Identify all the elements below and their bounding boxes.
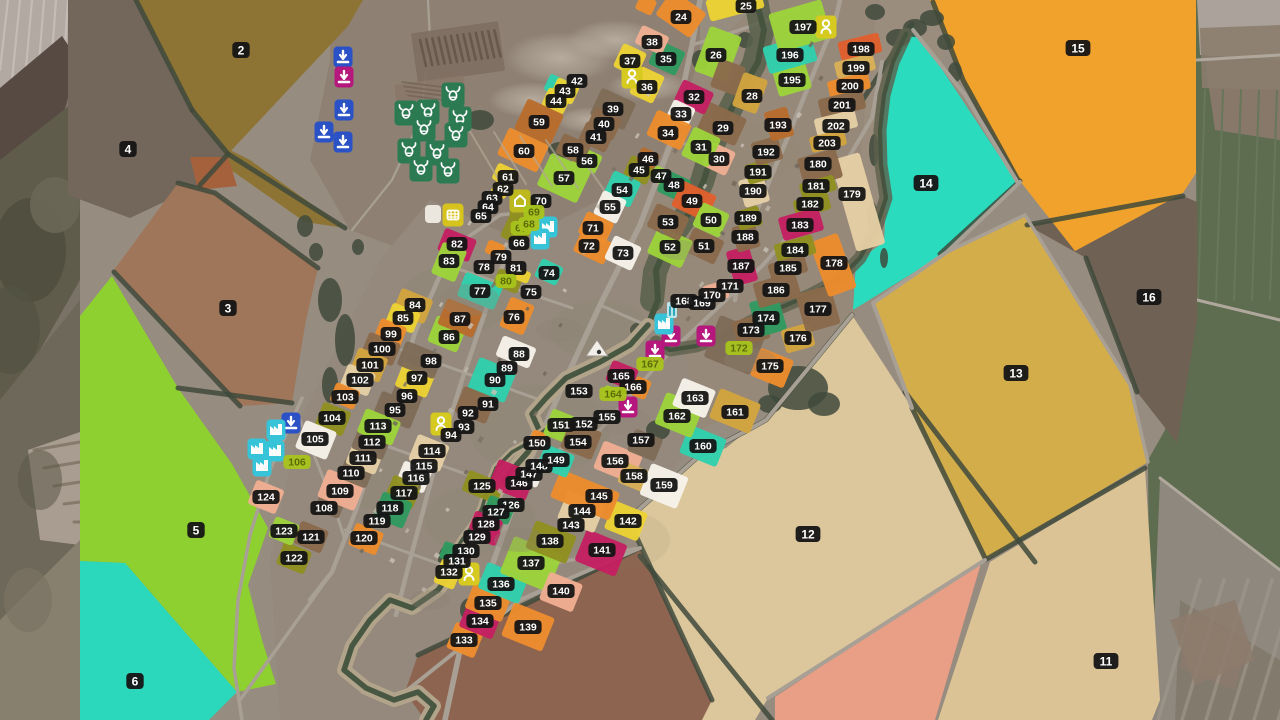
svg-text:177: 177 bbox=[809, 304, 827, 316]
svg-text:140: 140 bbox=[552, 586, 570, 598]
svg-text:35: 35 bbox=[660, 54, 672, 66]
svg-text:129: 129 bbox=[468, 532, 486, 544]
svg-text:98: 98 bbox=[425, 356, 437, 368]
svg-text:138: 138 bbox=[541, 536, 559, 548]
svg-text:44: 44 bbox=[550, 96, 562, 108]
svg-text:163: 163 bbox=[686, 393, 704, 405]
svg-text:164: 164 bbox=[604, 389, 622, 401]
svg-text:198: 198 bbox=[852, 44, 870, 56]
svg-text:45: 45 bbox=[633, 165, 645, 177]
svg-text:142: 142 bbox=[619, 516, 637, 528]
svg-text:176: 176 bbox=[789, 333, 807, 345]
svg-text:96: 96 bbox=[401, 391, 413, 403]
svg-text:151: 151 bbox=[552, 420, 570, 432]
svg-text:69: 69 bbox=[528, 207, 540, 219]
svg-text:5: 5 bbox=[193, 523, 200, 537]
svg-text:99: 99 bbox=[385, 329, 397, 341]
svg-text:173: 173 bbox=[742, 325, 760, 337]
svg-text:37: 37 bbox=[624, 56, 636, 68]
svg-text:115: 115 bbox=[416, 461, 433, 473]
svg-text:48: 48 bbox=[668, 180, 680, 192]
svg-text:155: 155 bbox=[598, 412, 616, 424]
svg-text:190: 190 bbox=[744, 186, 762, 198]
svg-text:161: 161 bbox=[726, 407, 744, 419]
svg-text:183: 183 bbox=[791, 220, 809, 232]
svg-text:92: 92 bbox=[462, 408, 474, 420]
svg-text:159: 159 bbox=[655, 480, 673, 492]
svg-text:34: 34 bbox=[662, 128, 674, 140]
svg-text:14: 14 bbox=[919, 176, 933, 190]
svg-text:105: 105 bbox=[306, 434, 324, 446]
svg-text:111: 111 bbox=[355, 453, 372, 465]
svg-text:31: 31 bbox=[695, 142, 707, 154]
svg-text:150: 150 bbox=[528, 438, 546, 450]
svg-text:166: 166 bbox=[624, 382, 642, 394]
svg-text:160: 160 bbox=[694, 441, 712, 453]
svg-text:185: 185 bbox=[779, 263, 797, 275]
svg-text:89: 89 bbox=[501, 363, 513, 375]
svg-text:60: 60 bbox=[518, 146, 530, 158]
svg-text:41: 41 bbox=[590, 132, 602, 144]
svg-text:79: 79 bbox=[495, 252, 507, 264]
svg-text:33: 33 bbox=[675, 109, 687, 121]
svg-text:53: 53 bbox=[662, 217, 674, 229]
svg-text:109: 109 bbox=[331, 486, 349, 498]
svg-text:125: 125 bbox=[473, 481, 491, 493]
svg-text:174: 174 bbox=[757, 313, 775, 325]
svg-text:50: 50 bbox=[705, 215, 717, 227]
svg-text:78: 78 bbox=[478, 262, 490, 274]
svg-text:128: 128 bbox=[477, 519, 495, 531]
svg-text:40: 40 bbox=[598, 119, 610, 131]
svg-text:82: 82 bbox=[451, 239, 463, 251]
svg-text:149: 149 bbox=[547, 455, 565, 467]
svg-text:6: 6 bbox=[132, 674, 139, 688]
svg-text:30: 30 bbox=[713, 154, 725, 166]
svg-text:182: 182 bbox=[801, 199, 819, 211]
svg-text:112: 112 bbox=[364, 437, 381, 449]
svg-text:39: 39 bbox=[607, 104, 619, 116]
svg-text:201: 201 bbox=[833, 100, 851, 112]
svg-text:141: 141 bbox=[593, 545, 611, 557]
svg-text:76: 76 bbox=[508, 312, 520, 324]
svg-text:13: 13 bbox=[1009, 366, 1023, 380]
svg-text:102: 102 bbox=[351, 375, 369, 387]
svg-text:181: 181 bbox=[807, 181, 825, 193]
svg-text:188: 188 bbox=[736, 232, 754, 244]
svg-text:56: 56 bbox=[581, 156, 593, 168]
svg-text:114: 114 bbox=[424, 446, 441, 458]
svg-text:2: 2 bbox=[238, 43, 245, 57]
svg-text:122: 122 bbox=[285, 553, 303, 565]
svg-text:57: 57 bbox=[558, 173, 570, 185]
svg-text:88: 88 bbox=[513, 349, 525, 361]
svg-text:71: 71 bbox=[587, 223, 599, 235]
svg-text:11: 11 bbox=[1100, 654, 1113, 668]
svg-text:94: 94 bbox=[445, 430, 457, 442]
svg-text:97: 97 bbox=[411, 373, 423, 385]
svg-text:179: 179 bbox=[843, 189, 861, 201]
svg-text:28: 28 bbox=[746, 91, 758, 103]
svg-text:101: 101 bbox=[361, 360, 379, 372]
svg-text:156: 156 bbox=[606, 456, 624, 468]
svg-text:36: 36 bbox=[641, 82, 653, 94]
svg-text:32: 32 bbox=[688, 92, 700, 104]
svg-text:172: 172 bbox=[730, 343, 748, 355]
svg-text:187: 187 bbox=[732, 261, 750, 273]
svg-text:123: 123 bbox=[275, 526, 293, 538]
svg-text:196: 196 bbox=[781, 50, 799, 62]
svg-text:61: 61 bbox=[502, 172, 514, 184]
svg-text:200: 200 bbox=[841, 81, 859, 93]
svg-text:162: 162 bbox=[668, 411, 686, 423]
svg-text:178: 178 bbox=[825, 258, 843, 270]
svg-text:24: 24 bbox=[675, 12, 687, 24]
svg-text:132: 132 bbox=[440, 567, 458, 579]
svg-text:199: 199 bbox=[847, 63, 865, 75]
svg-text:118: 118 bbox=[382, 503, 399, 515]
svg-text:127: 127 bbox=[487, 507, 505, 519]
svg-text:117: 117 bbox=[396, 488, 413, 500]
svg-text:80: 80 bbox=[500, 276, 512, 288]
svg-text:100: 100 bbox=[373, 344, 391, 356]
svg-text:74: 74 bbox=[543, 268, 555, 280]
svg-text:119: 119 bbox=[369, 516, 386, 528]
svg-text:110: 110 bbox=[343, 468, 360, 480]
svg-text:195: 195 bbox=[783, 75, 801, 87]
svg-text:91: 91 bbox=[482, 399, 494, 411]
svg-text:203: 203 bbox=[818, 138, 836, 150]
svg-text:103: 103 bbox=[336, 392, 354, 404]
svg-text:189: 189 bbox=[739, 213, 757, 225]
svg-text:193: 193 bbox=[769, 120, 787, 132]
svg-text:124: 124 bbox=[257, 492, 275, 504]
svg-text:52: 52 bbox=[664, 242, 676, 254]
svg-text:157: 157 bbox=[632, 435, 650, 447]
svg-text:133: 133 bbox=[455, 635, 473, 647]
svg-text:137: 137 bbox=[522, 558, 540, 570]
svg-text:180: 180 bbox=[809, 159, 827, 171]
svg-text:55: 55 bbox=[604, 202, 616, 214]
svg-text:158: 158 bbox=[625, 471, 643, 483]
svg-text:113: 113 bbox=[370, 421, 387, 433]
svg-text:81: 81 bbox=[510, 263, 522, 275]
svg-text:87: 87 bbox=[454, 314, 466, 326]
svg-text:197: 197 bbox=[794, 22, 812, 34]
svg-text:75: 75 bbox=[525, 287, 537, 299]
svg-text:192: 192 bbox=[757, 147, 775, 159]
svg-text:86: 86 bbox=[443, 332, 455, 344]
svg-text:4: 4 bbox=[125, 142, 132, 156]
svg-text:51: 51 bbox=[698, 241, 710, 253]
svg-text:83: 83 bbox=[443, 256, 455, 268]
svg-text:153: 153 bbox=[570, 386, 588, 398]
svg-text:25: 25 bbox=[740, 1, 752, 13]
svg-text:143: 143 bbox=[562, 520, 580, 532]
svg-text:108: 108 bbox=[315, 503, 333, 515]
svg-text:68: 68 bbox=[523, 219, 535, 231]
svg-text:106: 106 bbox=[288, 457, 306, 469]
svg-text:16: 16 bbox=[1142, 290, 1156, 304]
svg-text:116: 116 bbox=[408, 473, 425, 485]
svg-text:66: 66 bbox=[513, 238, 525, 250]
svg-text:26: 26 bbox=[710, 50, 722, 62]
svg-text:145: 145 bbox=[590, 491, 608, 503]
svg-text:175: 175 bbox=[761, 361, 779, 373]
svg-text:134: 134 bbox=[471, 616, 489, 628]
svg-text:65: 65 bbox=[475, 211, 487, 223]
svg-text:3: 3 bbox=[225, 301, 232, 315]
svg-text:77: 77 bbox=[474, 286, 486, 298]
svg-text:73: 73 bbox=[617, 248, 629, 260]
svg-text:121: 121 bbox=[302, 532, 320, 544]
svg-text:154: 154 bbox=[569, 437, 587, 449]
svg-text:15: 15 bbox=[1071, 41, 1085, 55]
svg-text:104: 104 bbox=[323, 413, 341, 425]
svg-text:12: 12 bbox=[801, 527, 815, 541]
svg-text:46: 46 bbox=[642, 154, 654, 166]
svg-text:29: 29 bbox=[717, 123, 729, 135]
svg-text:59: 59 bbox=[533, 117, 545, 129]
svg-text:95: 95 bbox=[389, 405, 401, 417]
svg-text:38: 38 bbox=[646, 37, 658, 49]
svg-text:171: 171 bbox=[721, 281, 739, 293]
svg-text:90: 90 bbox=[489, 375, 501, 387]
svg-text:72: 72 bbox=[583, 241, 595, 253]
svg-text:58: 58 bbox=[567, 145, 579, 157]
svg-text:54: 54 bbox=[616, 185, 628, 197]
svg-text:152: 152 bbox=[575, 419, 593, 431]
svg-text:186: 186 bbox=[767, 285, 785, 297]
svg-text:136: 136 bbox=[492, 579, 510, 591]
svg-text:84: 84 bbox=[409, 300, 421, 312]
svg-text:120: 120 bbox=[355, 533, 373, 545]
svg-text:191: 191 bbox=[749, 167, 767, 179]
svg-text:85: 85 bbox=[397, 313, 409, 325]
svg-text:135: 135 bbox=[479, 598, 497, 610]
svg-text:202: 202 bbox=[827, 121, 845, 133]
svg-text:167: 167 bbox=[641, 359, 659, 371]
svg-text:144: 144 bbox=[573, 506, 591, 518]
svg-text:139: 139 bbox=[519, 622, 537, 634]
svg-text:49: 49 bbox=[686, 196, 698, 208]
svg-text:184: 184 bbox=[786, 245, 804, 257]
